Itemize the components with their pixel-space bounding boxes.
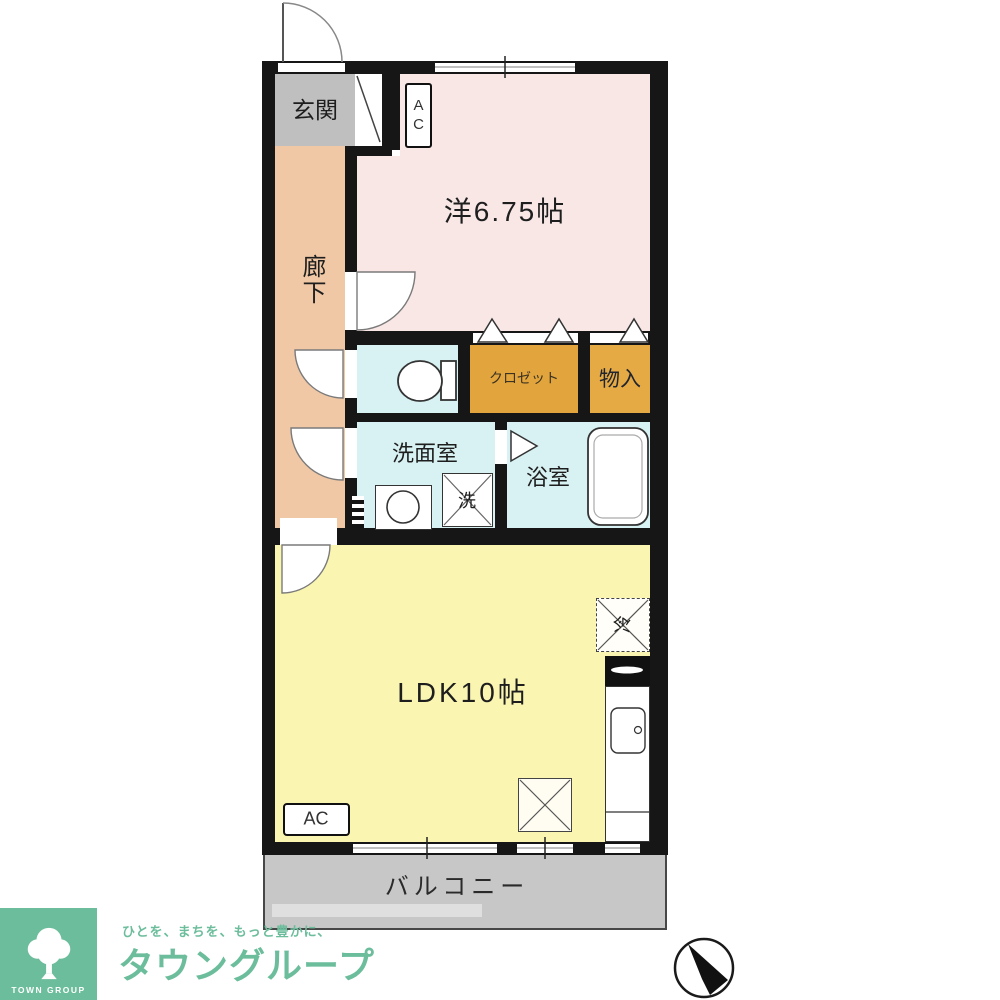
western-room-label: 洋6.75帖 xyxy=(444,190,567,230)
town-group-logo: TOWN GROUP xyxy=(0,908,97,1000)
entry-shoebox-line xyxy=(357,76,380,142)
fridge-label: 冷 xyxy=(609,615,635,633)
ldk-label: LDK10帖 xyxy=(397,671,529,711)
folding-door-triangle-icon xyxy=(478,319,648,342)
hallway-label: 廊下 xyxy=(294,254,329,306)
washing-machine-icon xyxy=(387,491,419,523)
plan-linework xyxy=(0,0,1000,1000)
brand-company-name: タウングループ xyxy=(118,937,375,989)
north-arrow-icon xyxy=(675,939,733,997)
kitchen-sink-icon xyxy=(606,708,649,812)
stove-icon xyxy=(611,667,643,674)
bathtub-icon xyxy=(588,428,648,525)
toilet-icon xyxy=(398,361,456,401)
ldk-box-x-mark xyxy=(520,780,570,830)
entrance-label: 玄関 xyxy=(292,91,338,125)
ac-bottom-label: AC xyxy=(303,809,328,830)
bath-door-triangle-icon xyxy=(511,431,537,461)
washroom-label: 洗面室 xyxy=(392,436,458,468)
entrance-door-swing-icon xyxy=(283,3,342,62)
bathroom-label: 浴室 xyxy=(526,460,570,492)
tree-icon xyxy=(20,921,78,983)
washer-label: 洗 xyxy=(458,487,476,513)
balcony-label: バルコニー xyxy=(385,867,530,902)
door-swing-arc-icon xyxy=(282,272,415,593)
logo-box-text: TOWN GROUP xyxy=(11,985,85,995)
floorplan-canvas: AC xyxy=(0,0,1000,1000)
storage-label: 物入 xyxy=(599,363,641,393)
closet-label: クロゼット xyxy=(489,368,559,388)
